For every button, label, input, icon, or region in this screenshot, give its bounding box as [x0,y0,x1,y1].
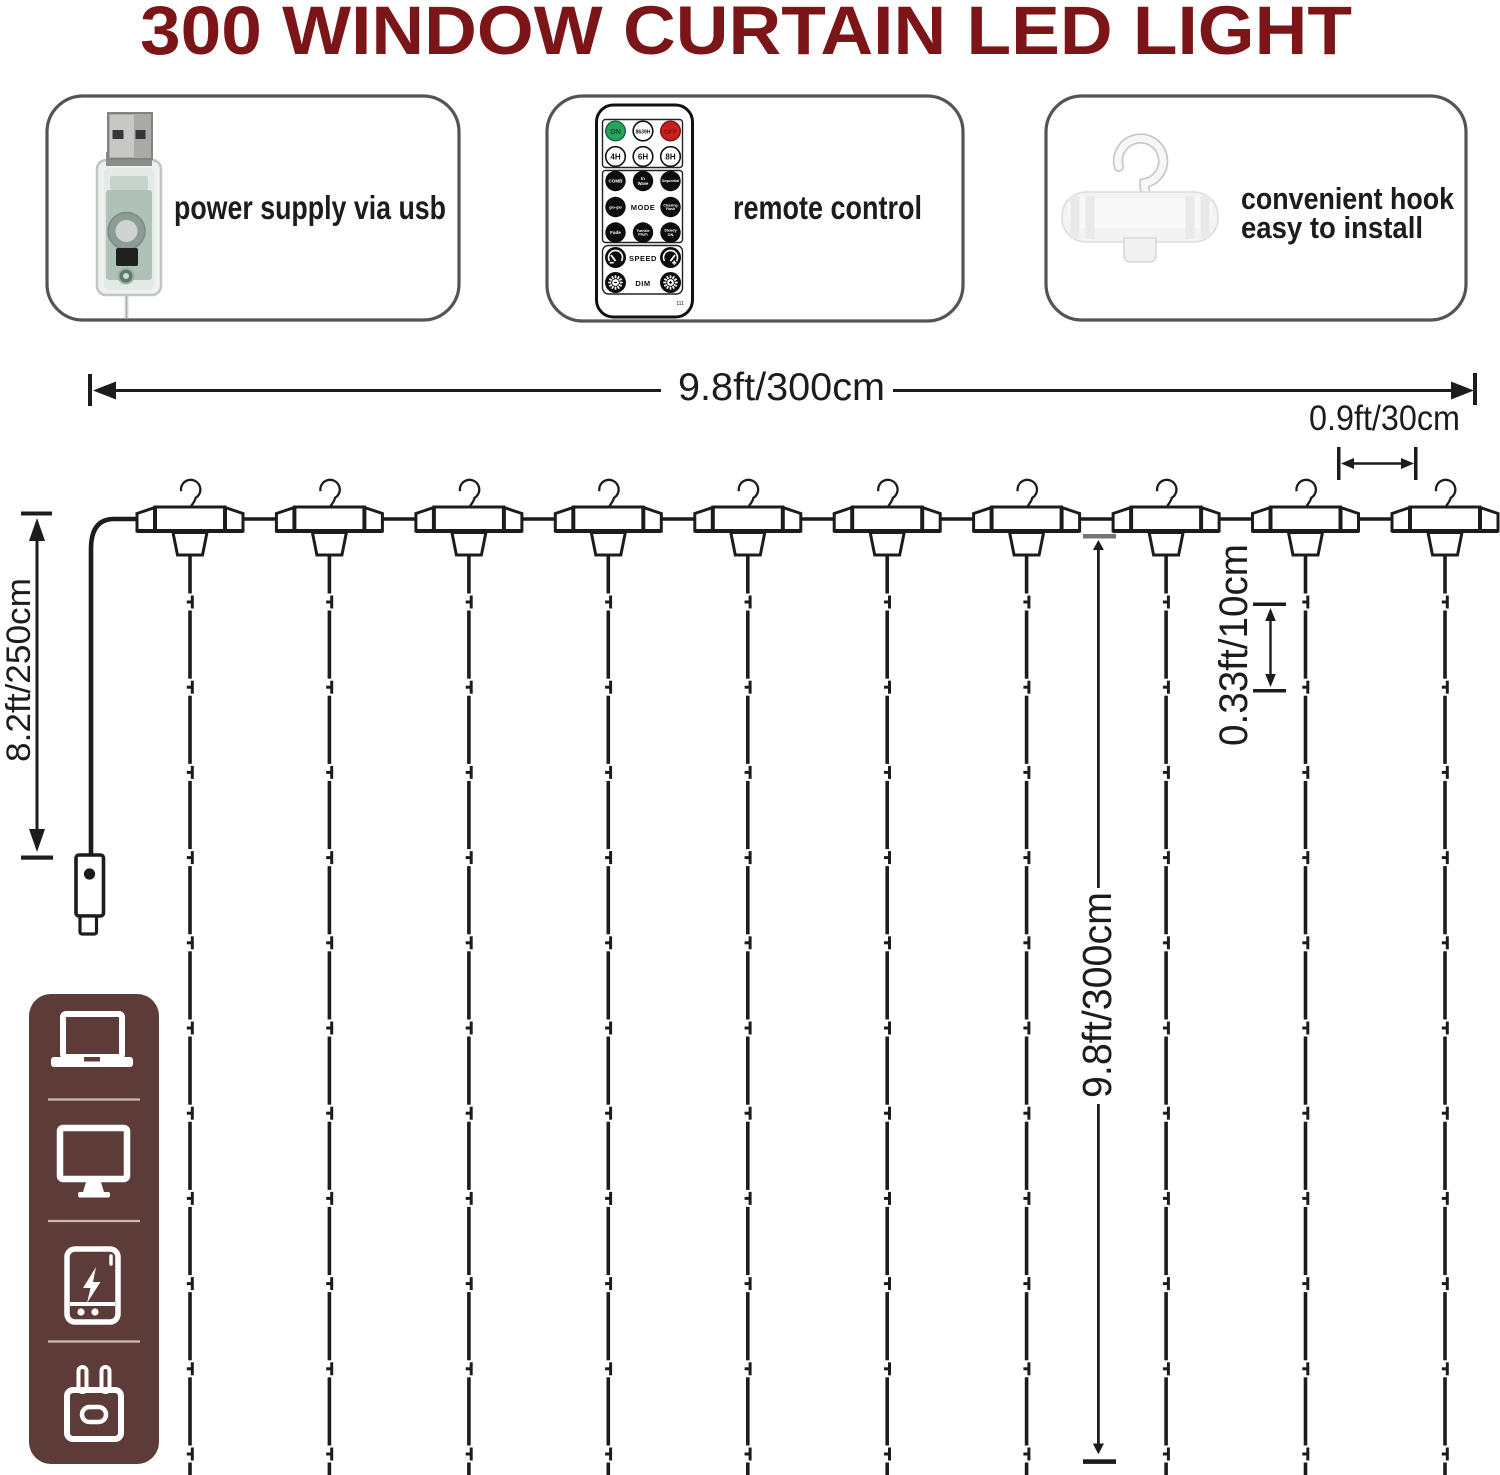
svg-text:9.8ft/300cm: 9.8ft/300cm [1074,892,1120,1098]
svg-text:Wave: Wave [638,181,649,186]
svg-text:0.33ft/10cm: 0.33ft/10cm [1212,544,1256,746]
svg-text:remote control: remote control [733,189,922,226]
svg-text:easy to install: easy to install [1241,210,1423,245]
svg-text:DIM: DIM [635,279,650,288]
svg-text:ON: ON [610,129,621,136]
svg-text:COMB: COMB [608,179,623,184]
svg-text:SPEED: SPEED [629,254,657,263]
svg-text:OFF: OFF [664,129,677,136]
svg-text:Flash: Flash [666,207,675,211]
svg-text:ON: ON [668,233,674,237]
svg-text:8639H: 8639H [636,130,651,136]
svg-text:4H: 4H [610,153,620,162]
svg-text:Sequential: Sequential [662,179,679,183]
svg-text:glo-glo: glo-glo [609,205,622,209]
svg-text:8.2ft/250cm: 8.2ft/250cm [0,578,38,762]
svg-text:0.9ft/30cm: 0.9ft/30cm [1309,399,1460,438]
svg-text:Fade: Fade [610,230,621,235]
svg-text:power supply via usb: power supply via usb [174,189,446,226]
svg-text:Flash: Flash [638,233,647,237]
svg-text:6H: 6H [638,153,648,162]
svg-text:9.8ft/300cm: 9.8ft/300cm [678,366,885,409]
svg-text:111: 111 [676,301,684,307]
svg-text:300 WINDOW CURTAIN LED LIGHT: 300 WINDOW CURTAIN LED LIGHT [140,0,1352,69]
svg-text:MODE: MODE [631,203,656,212]
svg-text:8H: 8H [665,153,675,162]
